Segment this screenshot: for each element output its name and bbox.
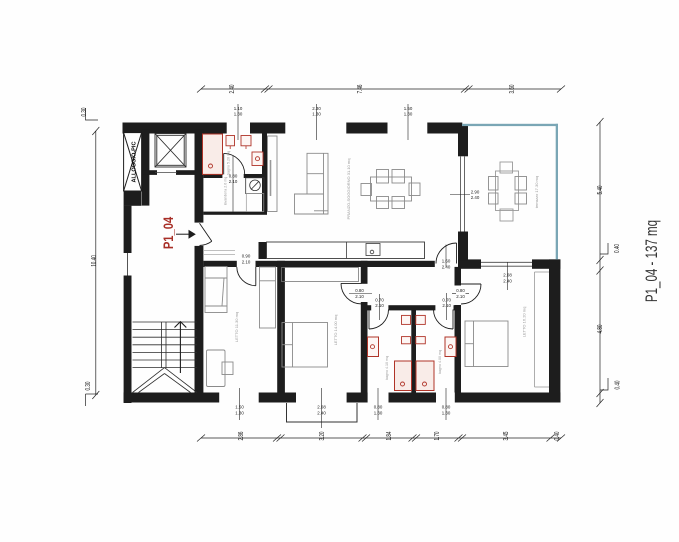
svg-text:ALLOGGIO-PIC: ALLOGGIO-PIC bbox=[132, 141, 138, 182]
svg-text:LETTO 16.20 mq: LETTO 16.20 mq bbox=[522, 307, 527, 338]
svg-text:0.40: 0.40 bbox=[613, 244, 621, 253]
svg-text:3.45: 3.45 bbox=[502, 431, 510, 440]
svg-text:bagno 4.10 mq: bagno 4.10 mq bbox=[385, 356, 389, 380]
svg-text:1.70: 1.70 bbox=[433, 431, 441, 440]
svg-text:2.40: 2.40 bbox=[471, 195, 480, 200]
svg-text:0.90: 0.90 bbox=[242, 254, 251, 259]
svg-text:0.40: 0.40 bbox=[613, 380, 621, 389]
svg-text:terrazzo 17.30 mq: terrazzo 17.30 mq bbox=[534, 176, 539, 208]
svg-text:2.40: 2.40 bbox=[228, 84, 236, 93]
svg-text:0.30: 0.30 bbox=[84, 381, 92, 390]
svg-text:5.40: 5.40 bbox=[596, 185, 604, 194]
svg-text:0.80: 0.80 bbox=[374, 405, 383, 410]
svg-text:2.90: 2.90 bbox=[471, 189, 480, 194]
svg-text:2.86: 2.86 bbox=[237, 431, 245, 440]
svg-text:2.10: 2.10 bbox=[442, 303, 451, 308]
svg-text:1.30: 1.30 bbox=[374, 410, 383, 415]
svg-text:P1_04 - 137 mq: P1_04 - 137 mq bbox=[643, 220, 662, 302]
svg-text:2.40: 2.40 bbox=[442, 264, 451, 269]
svg-text:3.60: 3.60 bbox=[508, 84, 516, 93]
svg-text:0.80: 0.80 bbox=[355, 288, 364, 293]
svg-text:0.80: 0.80 bbox=[442, 405, 451, 410]
svg-text:0.30: 0.30 bbox=[80, 107, 88, 116]
svg-text:1.60: 1.60 bbox=[442, 259, 451, 264]
svg-text:bagno 4.00 mq: bagno 4.00 mq bbox=[438, 350, 442, 374]
svg-text:0.80: 0.80 bbox=[456, 288, 465, 293]
svg-text:3.20: 3.20 bbox=[318, 431, 326, 440]
svg-text:10.40: 10.40 bbox=[90, 255, 98, 267]
svg-text:1.84: 1.84 bbox=[385, 431, 393, 440]
svg-text:1.30: 1.30 bbox=[404, 112, 413, 117]
svg-text:2.08: 2.08 bbox=[503, 273, 512, 278]
svg-text:1.30: 1.30 bbox=[235, 410, 244, 415]
svg-text:1.30: 1.30 bbox=[312, 112, 321, 117]
svg-text:PRANZO-SOGGIORNO 31.10 mq: PRANZO-SOGGIORNO 31.10 mq bbox=[346, 159, 351, 220]
svg-text:2.30: 2.30 bbox=[312, 106, 321, 111]
svg-text:2.10: 2.10 bbox=[456, 294, 465, 299]
svg-text:LETTO 11.30 mq: LETTO 11.30 mq bbox=[234, 312, 239, 342]
svg-text:7.46: 7.46 bbox=[356, 84, 364, 93]
svg-text:1.30: 1.30 bbox=[442, 410, 451, 415]
svg-text:2.10: 2.10 bbox=[242, 259, 251, 264]
svg-text:2.08: 2.08 bbox=[317, 405, 326, 410]
svg-text:P1_04: P1_04 bbox=[161, 217, 176, 249]
svg-text:2.10: 2.10 bbox=[355, 294, 364, 299]
svg-text:2.10: 2.10 bbox=[229, 179, 238, 184]
svg-text:lavanderia 2.6 mq: lavanderia 2.6 mq bbox=[224, 177, 228, 206]
svg-text:2.40: 2.40 bbox=[503, 279, 512, 284]
svg-text:2.10: 2.10 bbox=[375, 303, 384, 308]
svg-text:LETTO 14.00 mq: LETTO 14.00 mq bbox=[333, 315, 338, 346]
svg-text:0.80: 0.80 bbox=[229, 174, 238, 179]
svg-text:0.40: 0.40 bbox=[553, 431, 561, 440]
svg-text:1.10: 1.10 bbox=[234, 106, 243, 111]
svg-text:4.80: 4.80 bbox=[596, 324, 604, 333]
svg-text:1.50: 1.50 bbox=[235, 405, 244, 410]
svg-text:bagno 5.20 mq: bagno 5.20 mq bbox=[227, 151, 231, 175]
svg-text:2.40: 2.40 bbox=[317, 410, 326, 415]
svg-text:1.50: 1.50 bbox=[404, 106, 413, 111]
svg-text:1.30: 1.30 bbox=[234, 112, 243, 117]
